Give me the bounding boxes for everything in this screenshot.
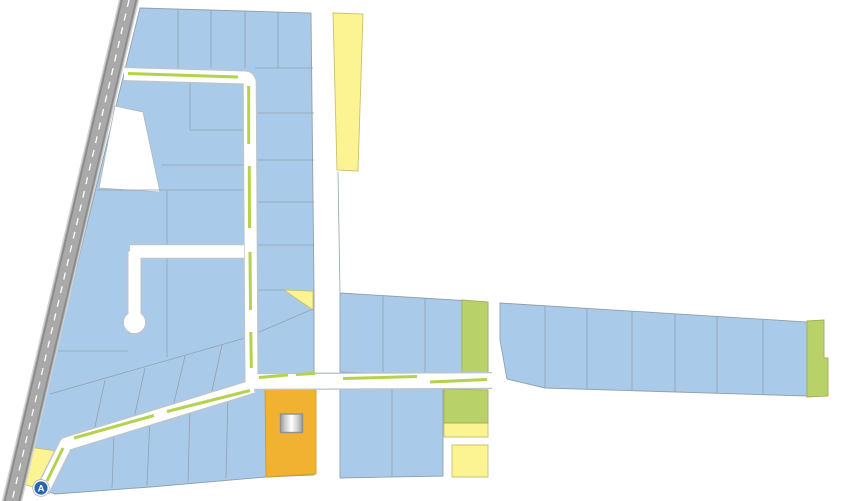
parcel-yellow-north[interactable] [333,13,363,171]
road-dash [250,252,251,310]
road-cul-de-sac [124,312,144,332]
road-dash [296,374,315,375]
map-marker-a[interactable]: A [33,480,50,497]
parcel-south-middle-block[interactable] [340,385,443,478]
map-canvas[interactable]: A [0,0,852,501]
parcel-yellow-square-southeast[interactable] [452,445,488,477]
road-dash [343,377,417,379]
building-icon[interactable] [281,414,303,433]
road-edge-line [338,172,340,292]
parcel-map-svg: A [0,0,852,501]
parcel-yellow-strip-southeast[interactable] [444,423,488,437]
parcel-east-strip[interactable] [500,303,807,396]
marker-label: A [38,483,45,494]
parcel-green-east-end[interactable] [807,320,828,397]
parcel-green-middle-strip-end[interactable] [462,300,488,377]
parcel-green-southeast[interactable] [444,389,488,423]
road-dash [251,332,252,368]
warehouse-building-icon[interactable] [281,414,303,433]
